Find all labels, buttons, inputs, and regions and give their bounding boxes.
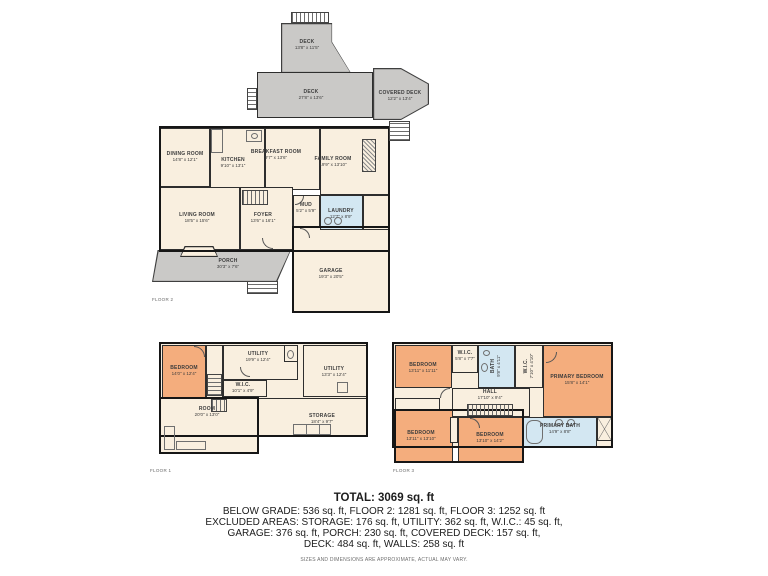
label-f3-hall: HALL17'10" x 9'4" [478,389,503,401]
label-porch: PORCH30'3" x 7'6" [217,258,239,270]
label-f1-bedroom: BEDROOM14'0" x 12'4" [170,365,198,377]
f1-utility-table [337,382,348,393]
floorplan-sheet: DECK13'8" x 11'5" DECK27'8" x 13'6" COVE… [0,0,768,576]
label-f3-bath: BATH9'8" x 4'11" [490,355,502,377]
floor3-label: FLOOR 3 [393,468,414,473]
deck-side-stairs [247,88,257,110]
room-hall-closet [363,195,389,230]
label-covered-deck: COVERED DECK12'2" x 13'4" [379,90,422,102]
label-foyer: FOYER13'6" x 16'1" [251,212,276,224]
label-f3-wic-small: W.I.C.5'8" x 7'7" [455,350,475,362]
f1-toilet [287,350,294,359]
summary-line-4: DECK: 484 sq. ft, WALLS: 258 sq. ft [0,539,768,550]
kitchen-fridge [211,129,223,153]
f1-stairs [207,374,222,396]
floor1-label: FLOOR 1 [150,468,171,473]
total-area: TOTAL: 3069 sq. ft [0,492,768,504]
f1-counter-left [164,426,175,450]
label-f3-bedroom-bm: BEDROOM13'10" x 14'2" [476,432,504,444]
kitchen-sink [251,133,258,139]
bay-window [180,246,218,257]
f3-toilet [481,363,488,372]
label-f1-utility-top: UTILITY19'9" x 12'4" [246,351,271,363]
bay-window-floor [181,247,217,256]
f1-storage-shelves [293,424,331,435]
f3-bath-sink [483,350,490,356]
f3-shower [597,417,612,441]
label-f3-wic-primary: W.I.C.7'10" x 4'10" [523,354,535,379]
summary-line-3: GARAGE: 376 sq. ft, PORCH: 230 sq. ft, C… [0,528,768,539]
label-f1-storage: STORAGE18'4" x 9'7" [309,413,335,425]
f1-counter-bottom [176,441,206,450]
label-f1-utility-right: UTILITY13'3" x 12'4" [322,366,347,378]
f3-closet-mid [450,417,458,443]
foyer-stairs [242,190,268,205]
label-garage: GARAGE19'3" x 20'5" [319,268,344,280]
label-deck-upper: DECK13'8" x 11'5" [295,39,319,51]
f3-hall-stairs [467,404,513,416]
f3-closets [395,398,440,410]
label-f3-primary-bath: PRIMARY BATH14'9" x 8'8" [540,423,580,435]
label-f1-room: ROOM20'0" x 13'0" [195,406,220,418]
label-dining: DINING ROOM14'8" x 12'1" [167,151,204,163]
area-summary: TOTAL: 3069 sq. ft BELOW GRADE: 536 sq. … [0,492,768,563]
deck-top-stairs [291,12,329,23]
disclaimer: SIZES AND DIMENSIONS ARE APPROXIMATE, AC… [0,557,768,563]
label-family: FAMILY ROOM19'9" x 13'10" [315,156,352,168]
floor2-label: FLOOR 2 [152,297,173,302]
label-living: LIVING ROOM18'5" x 15'6" [179,212,215,224]
label-f3-primary-bedroom: PRIMARY BEDROOM15'8" x 14'1" [550,374,603,386]
porch-stairs [247,281,278,294]
covered-deck-stairs [389,121,410,141]
label-mud: MUD5'2" x 5'9" [296,202,316,214]
label-deck-main: DECK27'8" x 13'6" [299,89,324,101]
label-f1-wic: W.I.C.10'1" x 4'9" [232,382,254,394]
summary-line-1: BELOW GRADE: 536 sq. ft, FLOOR 2: 1281 s… [0,506,768,517]
label-f3-bedroom-tl: BEDROOM13'11" x 11'11" [409,362,438,374]
label-laundry: LAUNDRY12'7" x 8'9" [328,208,354,220]
fireplace-hatch [362,139,376,172]
label-breakfast: BREAKFAST ROOM9'7" x 13'6" [251,149,301,161]
label-f3-bedroom-bl: BEDROOM13'11" x 13'10" [406,430,435,442]
label-kitchen: KITCHEN9'10" x 13'1" [221,157,246,169]
summary-line-2: EXCLUDED AREAS: STORAGE: 176 sq. ft, UTI… [0,517,768,528]
